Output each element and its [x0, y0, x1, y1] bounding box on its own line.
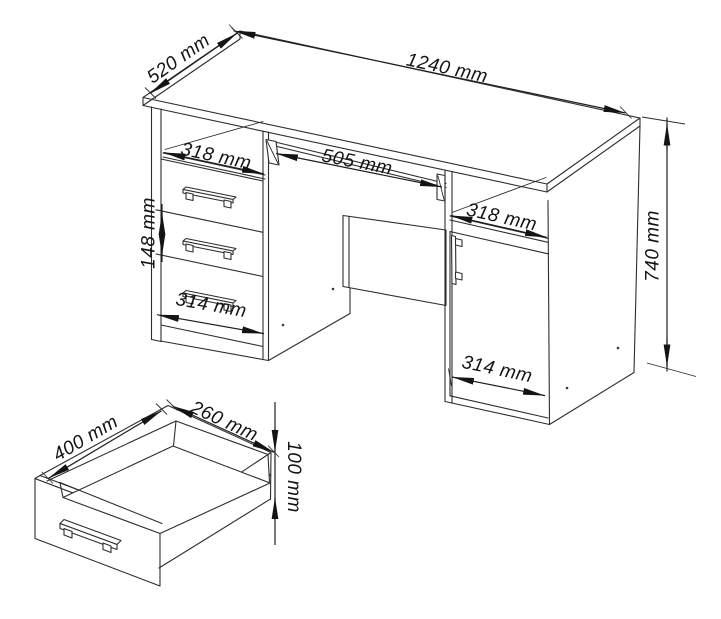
- dim-label-middle-drawer-height: 148 mm: [139, 197, 160, 269]
- dim-label-keyboard-tray-width: 505 mm: [320, 145, 394, 179]
- drawer-handle-top: [183, 187, 236, 208]
- dim-label-drawer-height: 100 mm: [283, 441, 304, 513]
- dim-label-right-shelf-width: 318 mm: [464, 200, 538, 236]
- drawer-handle-middle: [183, 239, 236, 260]
- dim-label-left-pedestal-width: 314 mm: [174, 289, 248, 322]
- technical-drawing-page: 1240 mm 520 mm 318 mm 505 mm 318 mm 148 …: [0, 0, 721, 619]
- furniture-dimension-drawing: 1240 mm 520 mm 318 mm 505 mm 318 mm 148 …: [0, 0, 721, 619]
- drawer-detail-view: 400 mm 260 mm 100 mm: [35, 397, 304, 586]
- dim-label-right-pedestal-width: 314 mm: [460, 352, 534, 387]
- dim-label-overall-height: 740 mm: [643, 210, 664, 282]
- modesty-panel: [343, 216, 446, 306]
- desk-view: 1240 mm 520 mm 318 mm 505 mm 318 mm 148 …: [139, 25, 696, 425]
- door-handle: [452, 236, 463, 285]
- dim-label-drawer-depth: 400 mm: [50, 411, 122, 465]
